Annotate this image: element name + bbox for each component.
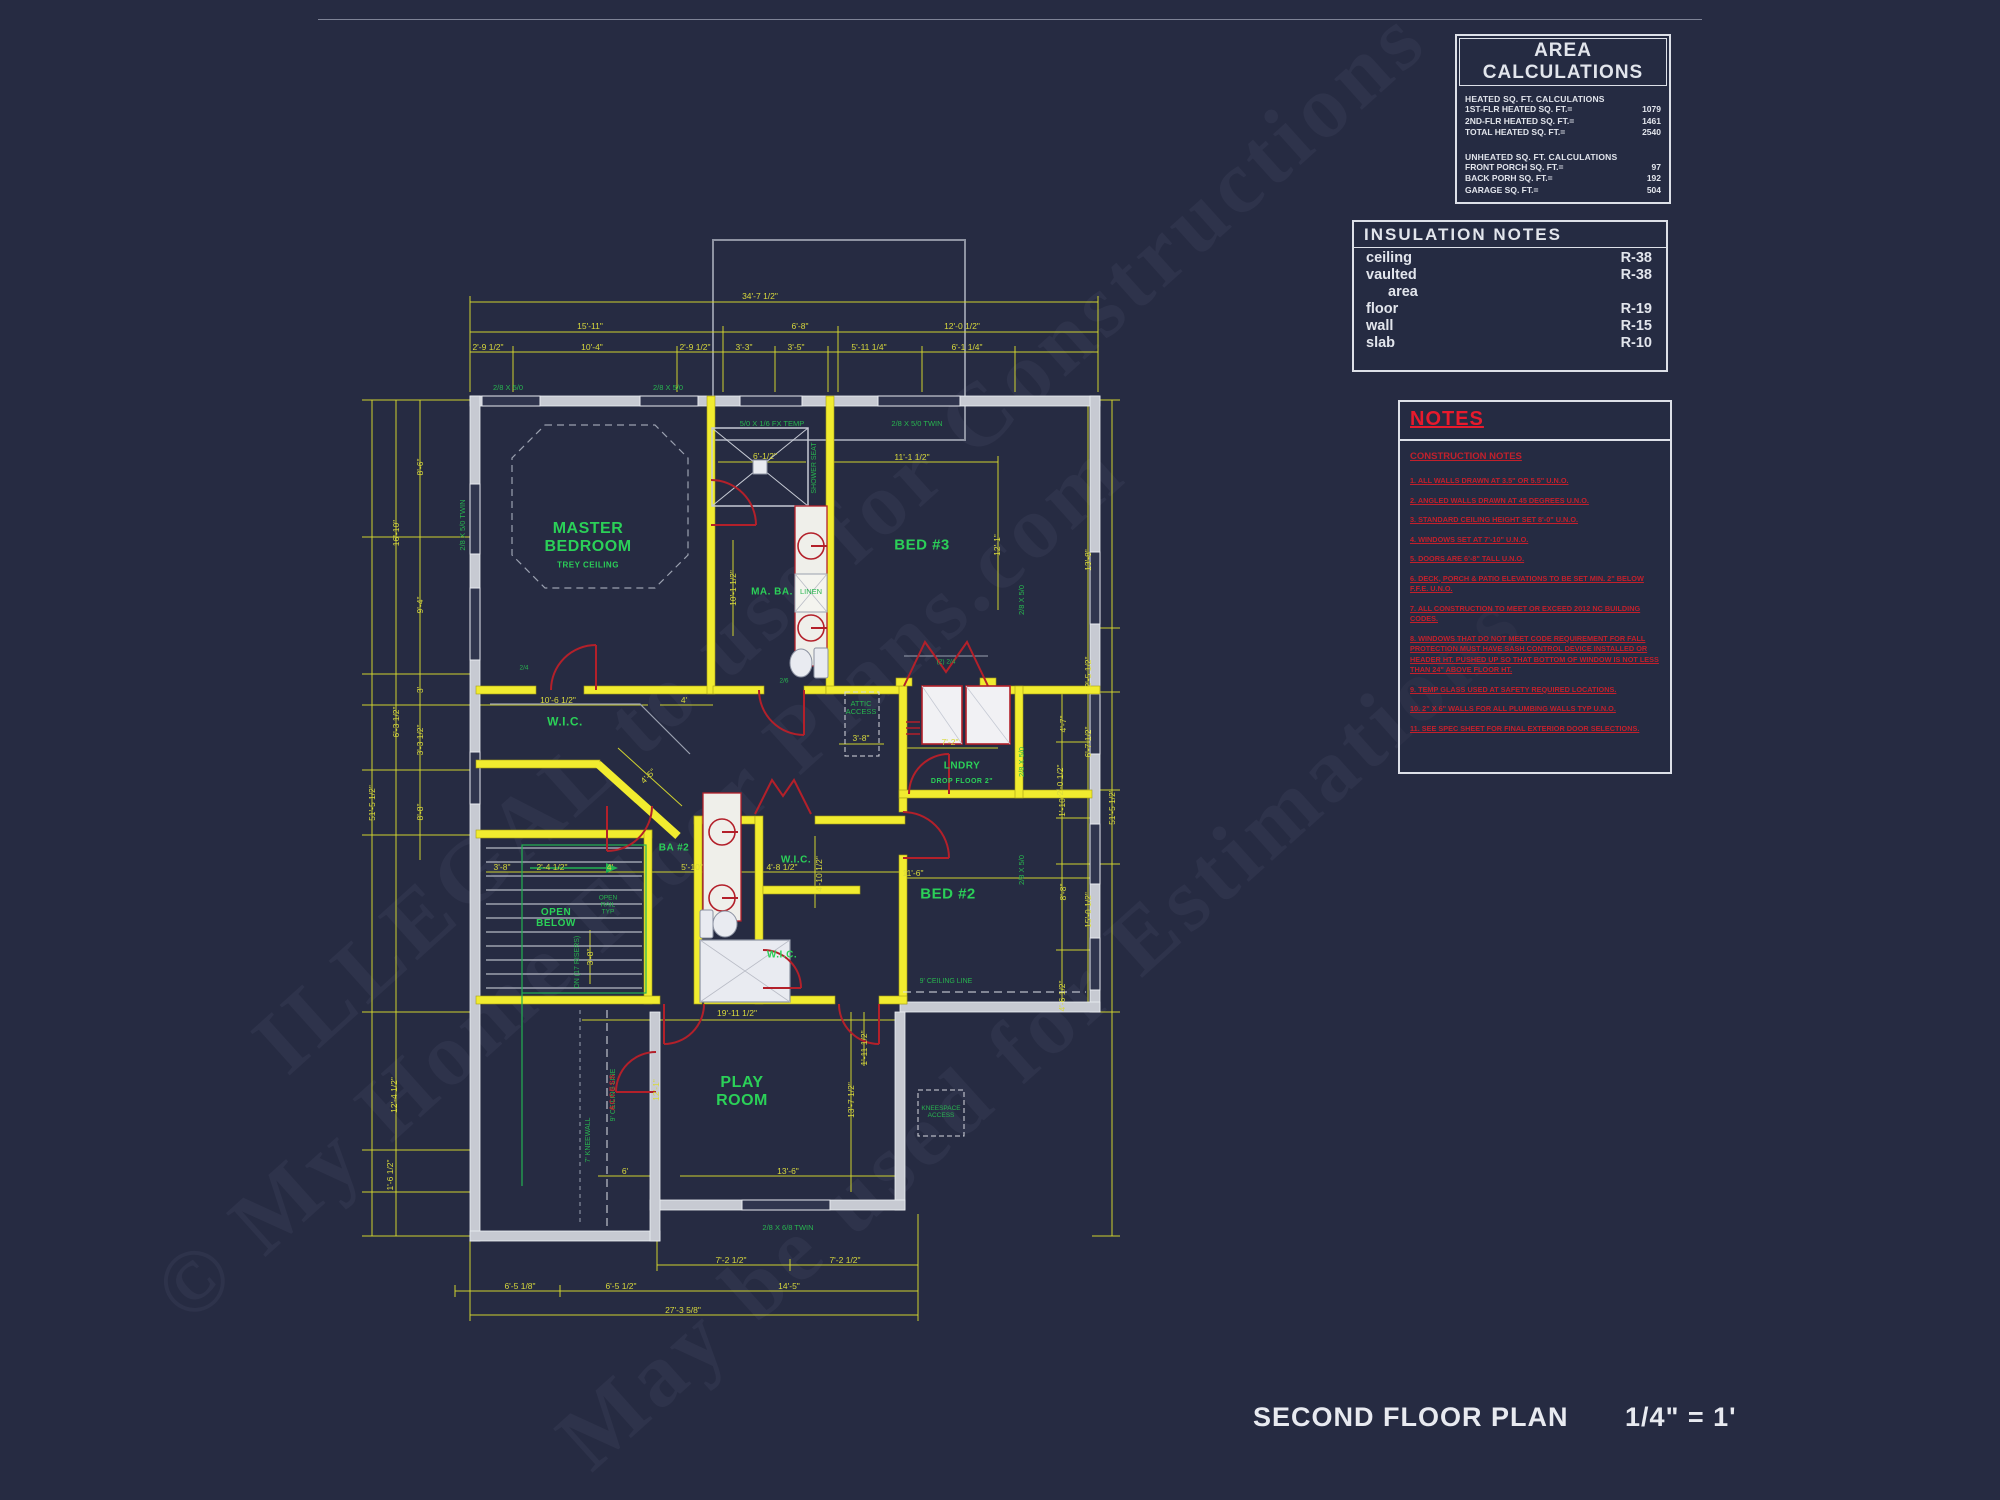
plan-label: 2'-5 1/2" bbox=[1083, 656, 1093, 687]
notes-subtitle: CONSTRUCTION NOTES bbox=[1410, 451, 1660, 462]
room-label-wic-master: W.I.C. bbox=[547, 715, 583, 728]
table-row: 1ST-FLR HEATED SQ. FT.=1079 bbox=[1465, 104, 1661, 116]
sheet-title: SECOND FLOOR PLAN bbox=[1253, 1402, 1569, 1432]
plan-label: 3'-3" bbox=[736, 342, 753, 352]
room-label-bed3: BED #3 bbox=[894, 538, 950, 555]
note-item: 9. TEMP GLASS USED AT SAFETY REQUIRED LO… bbox=[1410, 685, 1660, 696]
plan-label: 6' bbox=[622, 1166, 628, 1176]
room-label-bed2: BED #2 bbox=[920, 887, 976, 904]
plan-label: 2/4 bbox=[519, 664, 528, 671]
plan-label: 4'-6 1/2" bbox=[1057, 980, 1067, 1011]
plan-label: 5'-10" bbox=[681, 862, 703, 872]
note-item: 2. ANGLED WALLS DRAWN AT 45 DEGREES U.N.… bbox=[1410, 496, 1660, 507]
plan-label: 6'-3 1/2" bbox=[391, 706, 401, 737]
plan-label: 2/8 X 5/0 bbox=[1018, 747, 1026, 777]
toilet bbox=[814, 648, 828, 678]
plan-label: 9' CEILING LINE bbox=[920, 978, 973, 986]
plan-label: 2'-9 1/2" bbox=[679, 342, 710, 352]
note-item: 4. WINDOWS SET AT 7'-10" U.N.O. bbox=[1410, 535, 1660, 546]
table-row: vaultedR-38 bbox=[1366, 267, 1652, 284]
plan-label: 7'-2 1/2" bbox=[715, 1255, 746, 1265]
plan-label: 16'-10" bbox=[391, 520, 401, 546]
room-label-wic-bed3: W.I.C. bbox=[767, 949, 797, 960]
plan-label: 7'-2 1/2" bbox=[829, 1255, 860, 1265]
plan-label: 3'-3 1/2" bbox=[415, 724, 425, 755]
plan-label: 12'-1" bbox=[992, 534, 1002, 556]
plan-label: 1'-11 1/2" bbox=[859, 1030, 869, 1065]
plan-label: 3'-8" bbox=[494, 862, 511, 872]
row-value: R-38 bbox=[1621, 267, 1652, 284]
heated-rows: 1ST-FLR HEATED SQ. FT.=10792ND-FLR HEATE… bbox=[1465, 104, 1661, 139]
plan-label: 3' bbox=[415, 687, 425, 693]
plan-label: 4'-7" bbox=[1058, 716, 1068, 733]
note-item: 5. DOORS ARE 6'-8" TALL U.N.O. bbox=[1410, 554, 1660, 565]
plan-label: 2/6 bbox=[779, 677, 788, 684]
plan-label: 2'-0 1/2" bbox=[1055, 764, 1065, 795]
label-open-below: OPEN BELOW bbox=[536, 907, 576, 929]
plan-label: 2/8 X 6/8 TWIN bbox=[762, 1224, 813, 1232]
heated-header: HEATED SQ. FT. CALCULATIONS bbox=[1465, 94, 1661, 104]
toilet bbox=[700, 910, 713, 938]
notes-title: NOTES bbox=[1400, 402, 1670, 441]
plan-label: SHOWER SEAT bbox=[811, 442, 819, 493]
plan-label: LINEN bbox=[800, 588, 822, 596]
plan-label: 1'-10" bbox=[1057, 795, 1067, 817]
plan-label: 19'-11 1/2" bbox=[717, 1008, 757, 1018]
row-label: floor bbox=[1366, 301, 1621, 318]
row-label: area bbox=[1366, 284, 1652, 301]
note-item: 7. ALL CONSTRUCTION TO MEET OR EXCEED 20… bbox=[1410, 604, 1660, 625]
insulation-notes-title: INSULATION NOTES bbox=[1354, 222, 1666, 248]
area-calculations-title: AREA CALCULATIONS bbox=[1459, 38, 1667, 86]
plan-label: 2/8 X 5/0 bbox=[1018, 855, 1026, 885]
stairs bbox=[486, 845, 646, 1186]
plan-label: ACCESS bbox=[608, 1073, 617, 1110]
row-label: 2ND-FLR HEATED SQ. FT.= bbox=[1465, 116, 1642, 128]
table-row: TOTAL HEATED SQ. FT.=2540 bbox=[1465, 127, 1661, 139]
table-row: FRONT PORCH SQ. FT.=97 bbox=[1465, 162, 1661, 174]
row-value: R-38 bbox=[1621, 250, 1652, 267]
plan-label: 7' KNEEWALL bbox=[585, 1117, 593, 1162]
plan-label: 13'-7 1/2" bbox=[846, 1082, 856, 1118]
row-value: 2540 bbox=[1642, 127, 1661, 139]
plan-label: 4' bbox=[607, 862, 613, 872]
notes-list: 1. ALL WALLS DRAWN AT 3.5" OR 5.5" U.N.O… bbox=[1410, 476, 1660, 734]
plan-label: 10'-6 1/2" bbox=[540, 695, 576, 705]
plan-label: 6'-8" bbox=[792, 321, 809, 331]
note-item: 6. DECK, PORCH & PATIO ELEVATIONS TO BE … bbox=[1410, 574, 1660, 595]
room-label-bath2: BA #2 bbox=[659, 842, 689, 853]
plan-label: 10'-4" bbox=[581, 342, 603, 352]
plan-label: 6'-5 1/2" bbox=[605, 1281, 636, 1291]
room-label-laundry: LNDRY bbox=[944, 760, 981, 771]
plan-label: 34'-7 1/2" bbox=[742, 291, 778, 301]
blueprint-sheet: ILLEGAL to use for Constructions© My Hom… bbox=[0, 0, 2000, 1500]
plan-label: 3'-8" bbox=[585, 949, 595, 966]
plan-label: 3'-8" bbox=[853, 733, 870, 743]
plan-label: 4'-8 1/2" bbox=[766, 862, 797, 872]
row-label: wall bbox=[1366, 318, 1621, 335]
row-value: 192 bbox=[1647, 173, 1661, 185]
label-drop-floor: DROP FLOOR 2" bbox=[931, 778, 993, 786]
plan-label: 12'-0 1/2" bbox=[944, 321, 980, 331]
plan-label: 11'-1 1/2" bbox=[894, 452, 929, 462]
room-label-master-bedroom: MASTER BEDROOM bbox=[544, 520, 631, 556]
plan-label: 10'-1 1/2" bbox=[728, 570, 738, 606]
plan-label: 27'-3 5/8" bbox=[665, 1305, 701, 1315]
sheet-scale: 1/4" = 1' bbox=[1625, 1402, 1737, 1432]
note-item: 3. STANDARD CEILING HEIGHT SET 8'-0" U.N… bbox=[1410, 515, 1660, 526]
plan-label: 2/8 X 5/0 TWIN bbox=[891, 420, 942, 428]
plan-label: 2/8 X 5/0 TWIN bbox=[459, 499, 467, 550]
construction-notes-panel: NOTES CONSTRUCTION NOTES 1. ALL WALLS DR… bbox=[1398, 400, 1672, 774]
sheet-title-block: SECOND FLOOR PLAN 1/4" = 1' bbox=[1253, 1402, 1737, 1433]
note-item: 11. SEE SPEC SHEET FOR FINAL EXTERIOR DO… bbox=[1410, 724, 1660, 735]
row-value: R-19 bbox=[1621, 301, 1652, 318]
plan-label: 8'-6" bbox=[415, 459, 425, 476]
row-value: 1079 bbox=[1642, 104, 1661, 116]
row-label: ceiling bbox=[1366, 250, 1621, 267]
floor-plan-drawing bbox=[0, 0, 2000, 1500]
row-label: vaulted bbox=[1366, 267, 1621, 284]
row-value: R-10 bbox=[1621, 335, 1652, 352]
note-item: 10. 2" X 6" WALLS FOR ALL PLUMBING WALLS… bbox=[1410, 704, 1660, 715]
plan-label: 2/8 X 5/0 bbox=[1018, 585, 1026, 615]
room-label-play-room: PLAY ROOM bbox=[716, 1074, 768, 1110]
row-value: 1461 bbox=[1642, 116, 1661, 128]
plan-label: 6'-1 1/4" bbox=[951, 342, 982, 352]
row-label: TOTAL HEATED SQ. FT.= bbox=[1465, 127, 1642, 139]
plan-label: 6'-5 1/8" bbox=[504, 1281, 535, 1291]
label-trey-ceiling: TREY CEILING bbox=[557, 562, 619, 571]
plan-label: 6'-7 1/2" bbox=[1083, 726, 1093, 757]
note-item: 8. WINDOWS THAT DO NOT MEET CODE REQUIRE… bbox=[1410, 634, 1660, 676]
plan-label: 11'-6" bbox=[902, 868, 923, 878]
plan-label: 5'-11 1/4" bbox=[851, 342, 886, 352]
row-value: 504 bbox=[1647, 185, 1661, 197]
row-label: GARAGE SQ. FT.= bbox=[1465, 185, 1647, 197]
plan-label: 3'-5" bbox=[788, 342, 805, 352]
plan-label: 8'-8" bbox=[415, 804, 425, 821]
bath2-vanity bbox=[703, 793, 741, 921]
plan-label: 2'-4 1/2" bbox=[536, 862, 567, 872]
roof-outline bbox=[713, 240, 965, 440]
room-label-master-bath: MA. BA. bbox=[751, 586, 793, 597]
plan-label: ATTIC ACCESS bbox=[846, 700, 877, 717]
table-row: GARAGE SQ. FT.=504 bbox=[1465, 185, 1661, 197]
row-label: FRONT PORCH SQ. FT.= bbox=[1465, 162, 1652, 174]
table-row: slabR-10 bbox=[1366, 335, 1652, 352]
row-value: R-15 bbox=[1621, 318, 1652, 335]
note-item: 1. ALL WALLS DRAWN AT 3.5" OR 5.5" U.N.O… bbox=[1410, 476, 1660, 487]
row-label: BACK PORH SQ. FT.= bbox=[1465, 173, 1647, 185]
insulation-notes-panel: INSULATION NOTES ceilingR-38vaultedR-38a… bbox=[1352, 220, 1668, 372]
plan-label: 9'-4" bbox=[415, 597, 425, 614]
plan-label: 12'-1" bbox=[651, 1079, 661, 1101]
row-label: 1ST-FLR HEATED SQ. FT.= bbox=[1465, 104, 1642, 116]
plan-label: DN (17 RISERS) bbox=[574, 936, 582, 989]
windows bbox=[470, 396, 1100, 1210]
plan-label: (2) 2/4 bbox=[937, 658, 956, 665]
unheated-header: UNHEATED SQ. FT. CALCULATIONS bbox=[1465, 152, 1661, 162]
table-row: area bbox=[1366, 284, 1652, 301]
area-calculations-panel: AREA CALCULATIONS HEATED SQ. FT. CALCULA… bbox=[1455, 34, 1671, 204]
plan-label: OPEN RAIL TYP bbox=[599, 894, 617, 915]
plan-label: 8'-8" bbox=[1058, 884, 1068, 901]
row-label: slab bbox=[1366, 335, 1621, 352]
plan-label: 13'-8" bbox=[1083, 549, 1093, 571]
table-row: BACK PORH SQ. FT.=192 bbox=[1465, 173, 1661, 185]
table-row: ceilingR-38 bbox=[1366, 250, 1652, 267]
plan-label: 4'-10 1/2" bbox=[814, 856, 824, 892]
plan-label: 2'-9 1/2" bbox=[472, 342, 503, 352]
plan-label: 2/8 X 5/0 bbox=[493, 384, 523, 392]
plan-label: 4' bbox=[681, 695, 687, 705]
plan-label: 13'-6" bbox=[777, 1166, 799, 1176]
table-row: 2ND-FLR HEATED SQ. FT.=1461 bbox=[1465, 116, 1661, 128]
plan-label: 7'-2" bbox=[942, 737, 959, 747]
table-row: wallR-15 bbox=[1366, 318, 1652, 335]
plan-label: 1'-6 1/2" bbox=[385, 1159, 395, 1190]
plan-label: 6'-1/2" bbox=[753, 451, 777, 461]
plan-label: 2/8 X 5/0 bbox=[653, 384, 683, 392]
plan-label: 14'-5" bbox=[778, 1281, 800, 1291]
table-row: floorR-19 bbox=[1366, 301, 1652, 318]
plan-label: 15'-11" bbox=[577, 321, 603, 331]
plan-label: 51'-5 1/2" bbox=[367, 785, 377, 821]
unheated-rows: FRONT PORCH SQ. FT.=97BACK PORH SQ. FT.=… bbox=[1465, 162, 1661, 197]
plan-label: 15'-0 1/2" bbox=[1083, 892, 1093, 928]
plan-label: 51'-5 1/2" bbox=[1107, 789, 1117, 825]
bifold-door bbox=[755, 780, 811, 814]
row-value: 97 bbox=[1652, 162, 1661, 174]
plan-label: 5/0 X 1/6 FX TEMP bbox=[740, 420, 804, 428]
plan-label: KNEESPACE ACCESS bbox=[921, 1105, 960, 1119]
insulation-rows: ceilingR-38vaultedR-38areafloorR-19wallR… bbox=[1354, 248, 1666, 352]
plan-label: 12'-4 1/2" bbox=[389, 1077, 399, 1113]
